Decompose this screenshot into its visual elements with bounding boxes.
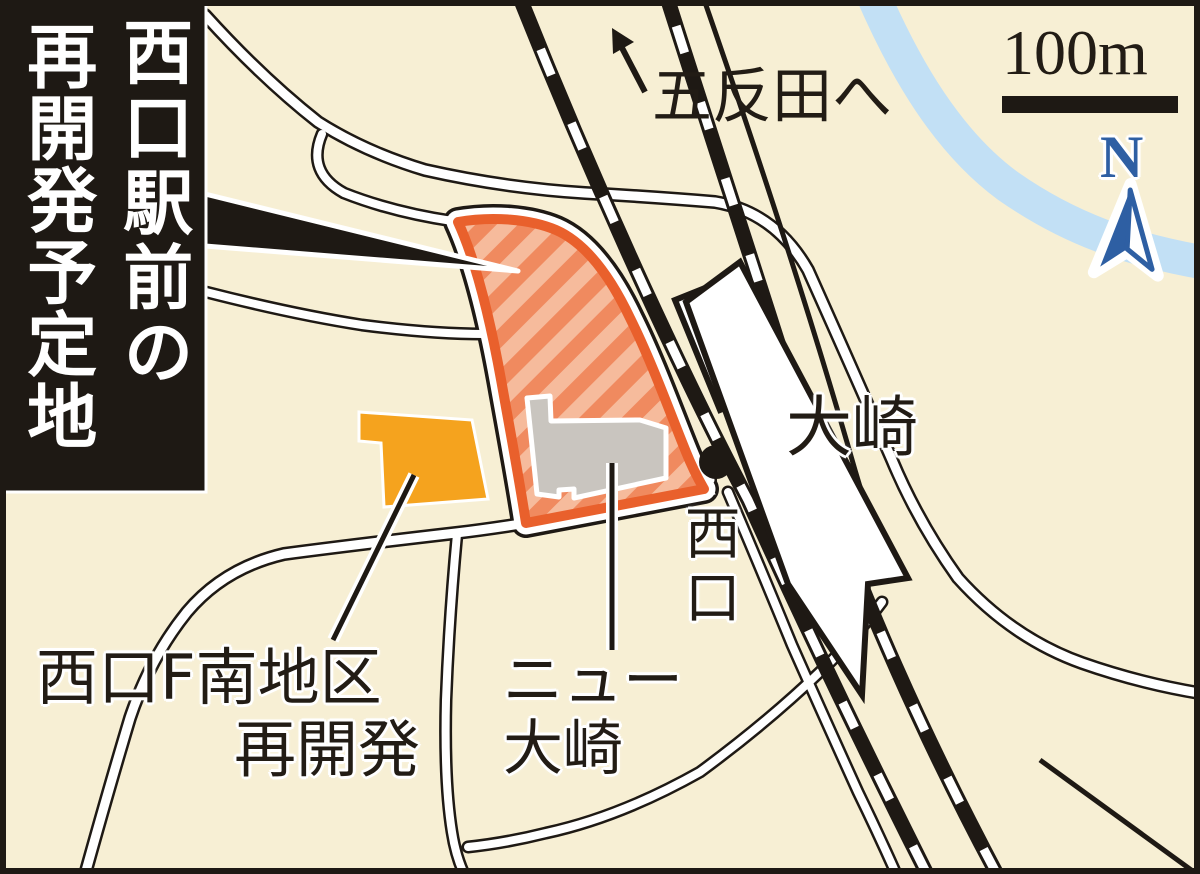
- map-title-line-1: 西口駅前の: [116, 16, 189, 391]
- north-label: N: [1100, 126, 1143, 188]
- station-name-label: 大崎: [786, 394, 918, 463]
- map-title-line-2: 再開発予定地: [20, 20, 93, 452]
- west-exit-label: 西口: [678, 504, 736, 632]
- new-osaki-label-line-2: 大崎: [503, 718, 623, 780]
- scale-label: 100m: [1002, 20, 1148, 87]
- scale-bar: [1002, 96, 1178, 113]
- f-south-label-line-2: 再開発: [234, 718, 420, 782]
- west-exit-dot: [699, 445, 733, 479]
- news-map-graphic: 西口駅前の 再開発予定地 五反田へ 100m N 大崎 西口 ニュー 大崎 西口…: [0, 0, 1200, 874]
- new-osaki-label-line-1: ニュー: [503, 650, 683, 712]
- to-gotanda-label: 五反田へ: [652, 66, 892, 128]
- f-south-label-line-1: 西口F南地区: [36, 646, 382, 710]
